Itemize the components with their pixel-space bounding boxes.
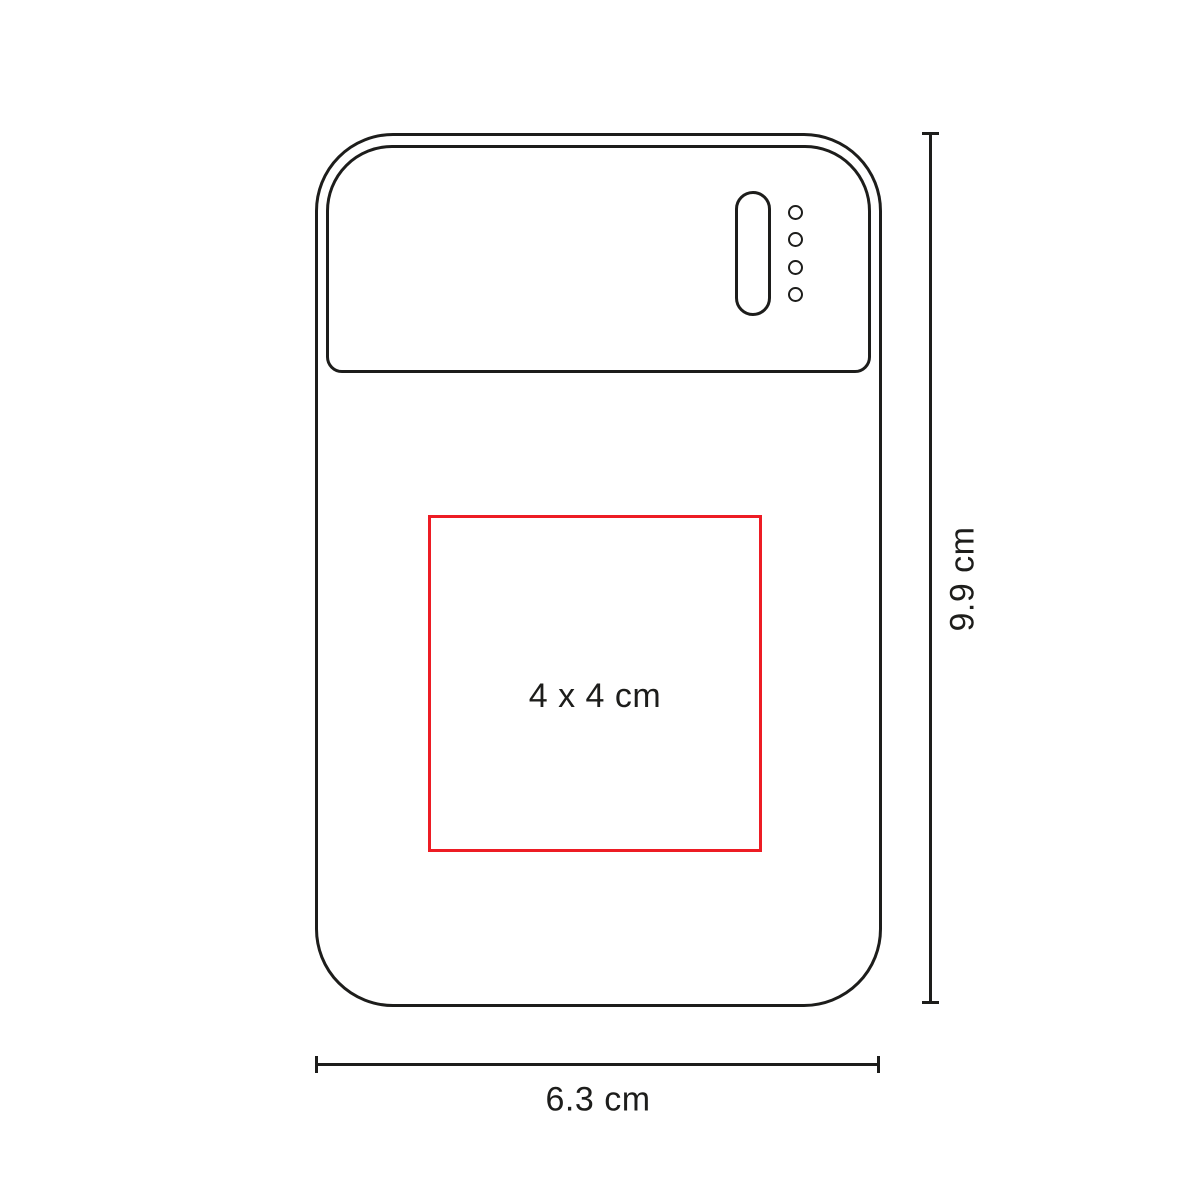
height-dimension-line [929, 133, 932, 1004]
device-top-panel [326, 145, 871, 373]
height-dimension-label: 9.9 cm [944, 526, 983, 631]
product-diagram-canvas: 4 x 4 cm 9.9 cm 6.3 cm [0, 0, 1200, 1200]
width-dimension-tick-left [315, 1056, 318, 1073]
led-indicator-dot-4 [788, 287, 803, 302]
power-button-icon [735, 191, 771, 316]
led-indicator-dot-1 [788, 205, 803, 220]
led-indicator-dot-2 [788, 232, 803, 247]
height-dimension-tick-top [922, 132, 939, 135]
height-dimension-tick-bottom [922, 1001, 939, 1004]
width-dimension-line [316, 1063, 880, 1066]
print-area-box: 4 x 4 cm [428, 515, 762, 852]
width-dimension-tick-right [877, 1056, 880, 1073]
width-dimension-label: 6.3 cm [545, 1081, 650, 1120]
print-area-label: 4 x 4 cm [529, 677, 661, 716]
led-indicator-dot-3 [788, 260, 803, 275]
